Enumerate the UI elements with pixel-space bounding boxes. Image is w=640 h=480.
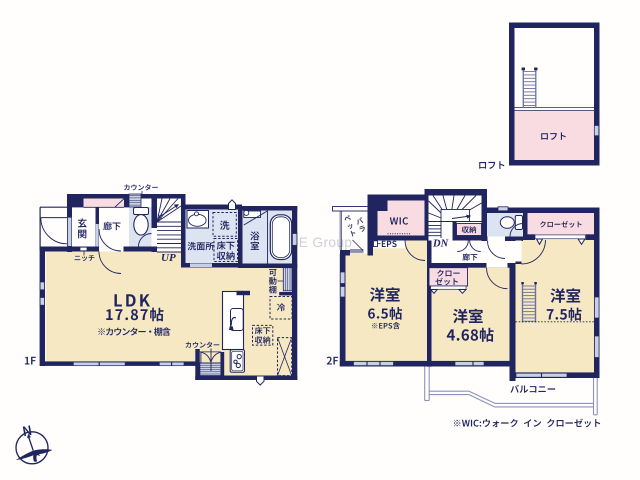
- svg-text:DN: DN: [432, 239, 449, 250]
- svg-text:UP: UP: [161, 252, 176, 264]
